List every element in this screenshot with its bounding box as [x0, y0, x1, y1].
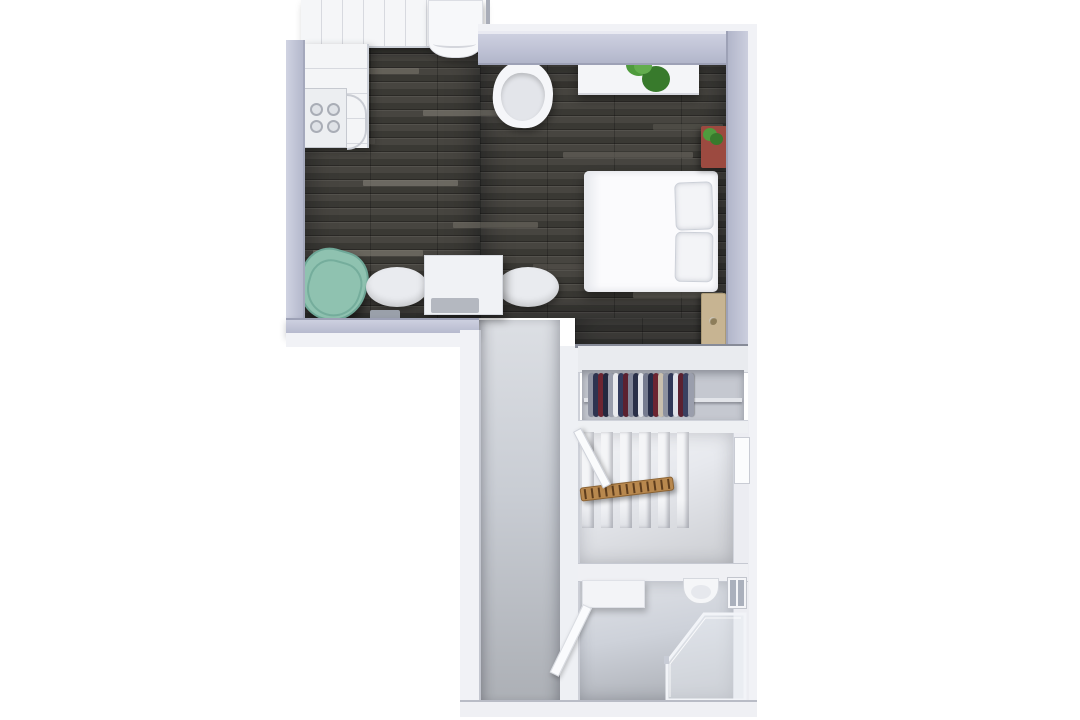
wall-west [286, 40, 305, 332]
shower-glass [667, 614, 745, 700]
outer-wall-band [478, 24, 757, 31]
railing-rung [667, 479, 670, 489]
stove-burner [327, 120, 340, 133]
bathroom-window [727, 577, 747, 609]
railing-rung [660, 480, 663, 490]
stove-burner [310, 103, 323, 116]
fridge [428, 0, 483, 58]
stair-tread [677, 432, 689, 528]
window-pane [730, 580, 736, 606]
outer-wall-band [748, 24, 757, 716]
open-entry-door [701, 293, 726, 348]
railing-rung [639, 482, 642, 492]
clothing-item [688, 373, 694, 417]
double-bed [584, 171, 718, 292]
railing-rung [605, 486, 608, 496]
railing-rung [632, 483, 635, 493]
hallway-wall-west [460, 330, 481, 702]
fridge-door-seam [433, 40, 476, 48]
dining-chair [366, 267, 428, 307]
duvet-fold [584, 171, 601, 292]
stove-burner [310, 120, 323, 133]
plant-leaves [710, 133, 723, 145]
shower-door-handle [664, 656, 669, 664]
railing-rung [653, 481, 656, 491]
stove-cooktop [303, 88, 347, 148]
railing-rung [618, 485, 621, 495]
floorplan-render [0, 0, 1080, 720]
floor-vent [431, 298, 479, 313]
railing-rung [612, 486, 615, 496]
railing-rung [584, 489, 587, 499]
window-pane [738, 580, 744, 606]
railing-rung [591, 488, 594, 498]
stair-tread [620, 432, 632, 528]
railing-rung [646, 481, 649, 491]
closet-clothes [588, 372, 720, 418]
desk-chair-seat [499, 72, 546, 123]
wall-north [478, 31, 748, 65]
railing-rung [598, 487, 601, 497]
hallway-floor [479, 320, 560, 702]
bathroom-vanity [582, 580, 645, 608]
door-knob [709, 317, 717, 325]
railing-rung [625, 484, 628, 494]
kitchen-counter-top [301, 0, 432, 48]
pillow [674, 181, 714, 230]
outer-wall-band [286, 333, 462, 347]
dresser-plant [703, 128, 723, 146]
closet-top-shelf [578, 346, 748, 373]
stove-burner [327, 103, 340, 116]
dining-chair [497, 267, 559, 307]
wall-south [460, 700, 757, 717]
pillow [675, 232, 714, 283]
landing-door [734, 437, 750, 484]
toilet-bowl [691, 585, 711, 599]
wall-east [726, 31, 750, 362]
